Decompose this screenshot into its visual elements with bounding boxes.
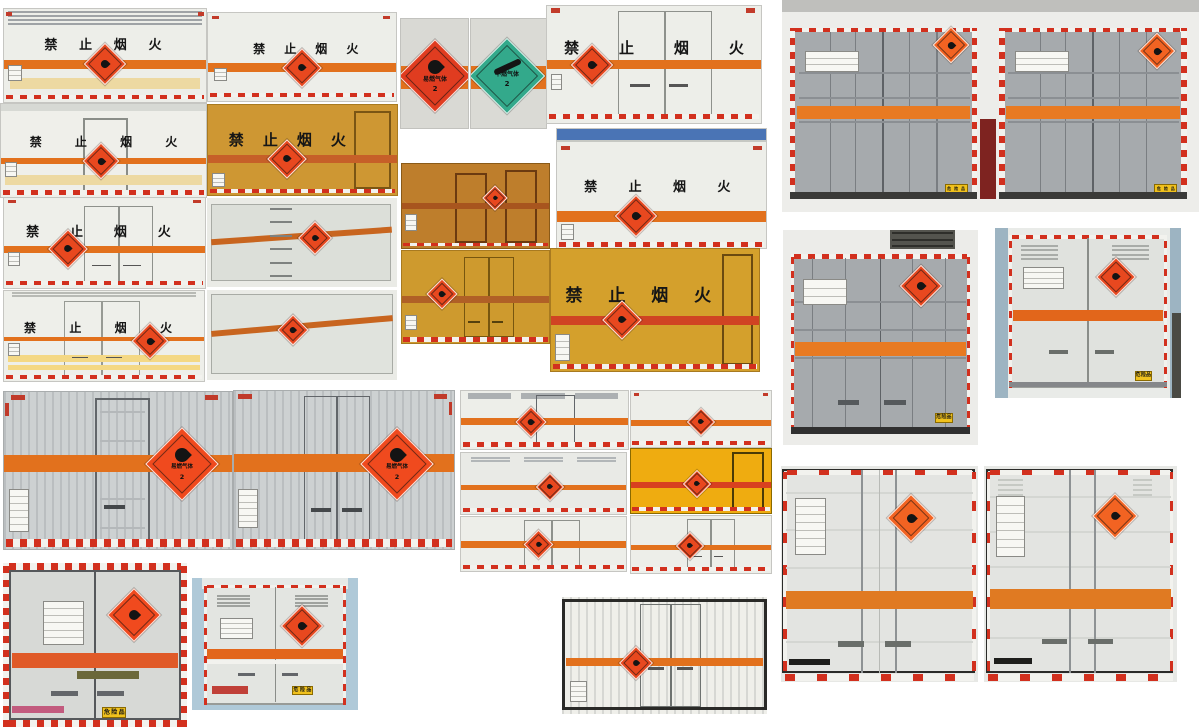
placard-class-number: 2 <box>180 474 185 481</box>
flame-icon <box>617 315 627 325</box>
placard-content <box>1145 39 1169 63</box>
flame-icon <box>438 290 446 298</box>
placard-label: 易燃气体 <box>422 76 446 82</box>
door-handle <box>1088 639 1113 645</box>
reflective-edge <box>967 254 970 432</box>
orange-stripe <box>4 337 204 342</box>
placard-content <box>1100 501 1130 531</box>
red-marker <box>6 12 12 17</box>
bottom-text-strip <box>994 658 1033 664</box>
vent-slats <box>1133 479 1152 496</box>
flame-icon <box>1109 510 1121 522</box>
lock-rod <box>1069 470 1071 673</box>
door-handle <box>693 556 703 557</box>
roof-edge <box>12 292 196 297</box>
photo-container-side-door-gas: 易燃气体2 <box>3 391 233 550</box>
info-plate <box>405 214 417 231</box>
red-marker <box>634 393 640 396</box>
reflective-strip <box>210 93 394 97</box>
flame-icon <box>905 511 918 524</box>
reflective-edge <box>1181 28 1186 200</box>
orange-stripe <box>990 589 1171 608</box>
photo-flammable-gas-placard: 易燃气体2 <box>400 18 469 129</box>
red-stripe <box>551 316 759 325</box>
placard-content <box>432 284 452 304</box>
vent-slats <box>524 457 564 462</box>
placard-content <box>55 236 81 262</box>
photo-yellow-box-no-fire: 禁止烟火 <box>207 104 398 196</box>
photo-panel-rear-doors-small-1 <box>460 516 627 572</box>
roof-edge <box>557 140 766 142</box>
info-plate <box>214 68 227 81</box>
red-stripe <box>402 203 549 210</box>
door-handle <box>630 84 649 86</box>
info-plate <box>1015 51 1069 72</box>
door-handle <box>884 400 905 405</box>
flammable-gas-placard-icon: 易燃气体2 <box>400 39 469 113</box>
reflective-strip <box>553 364 757 369</box>
placard-content <box>895 502 927 534</box>
red-label <box>212 686 249 694</box>
door-handle <box>311 508 331 512</box>
danger-goods-plate: 危险品 <box>292 686 314 695</box>
flame-icon <box>425 56 445 76</box>
flame-icon <box>1153 46 1163 56</box>
orange-stripe <box>795 342 967 356</box>
placard-content <box>939 33 963 57</box>
reflective-strip <box>549 114 759 119</box>
stripe-plate <box>77 671 140 678</box>
flame-icon <box>126 608 140 622</box>
no-fire-text: 禁止烟火 <box>584 179 730 197</box>
door-right <box>671 604 702 707</box>
placard-content <box>681 537 699 555</box>
door-split <box>879 470 880 673</box>
red-marker <box>753 146 761 151</box>
door-handle <box>1042 639 1067 645</box>
door-handle <box>677 667 693 670</box>
door-handle <box>104 505 125 509</box>
door-handle <box>1095 350 1114 354</box>
sky-band <box>557 129 766 140</box>
red-marker <box>551 8 560 13</box>
bottom-sill <box>1009 382 1167 387</box>
photo-panel-vents-small <box>460 452 627 515</box>
info-plate <box>212 173 225 187</box>
background-dark <box>1172 313 1181 398</box>
photo-truck-rear-large-right <box>984 466 1177 682</box>
door-split <box>94 570 95 721</box>
door-handle <box>123 265 141 267</box>
roof-edge <box>1 104 206 111</box>
reflective-edge <box>9 720 180 727</box>
photo-white-truck-rear-vents: 危险品 <box>995 228 1181 398</box>
orange-stripe <box>1006 106 1179 119</box>
no-fire-text: 禁止烟火 <box>26 225 171 240</box>
flame-icon <box>145 336 155 346</box>
flame-icon <box>99 58 110 69</box>
reflective-edge <box>972 28 977 200</box>
flame-icon <box>631 210 642 221</box>
door-handle <box>838 400 859 405</box>
info-plate <box>405 315 417 330</box>
placard-content: 易燃气体2 <box>410 51 460 101</box>
red-marker <box>198 12 204 17</box>
reflective-edge <box>791 254 794 432</box>
info-plate <box>803 279 848 305</box>
yellow-band <box>8 365 200 370</box>
reflective-strip <box>463 442 627 447</box>
vent-slats <box>577 457 617 462</box>
info-plate <box>551 74 562 90</box>
door-right <box>119 206 153 283</box>
placard-content: 易燃气体2 <box>157 439 207 489</box>
reflective-strip <box>210 189 395 193</box>
red-marker <box>205 395 219 400</box>
flammable-placard-icon <box>426 279 457 310</box>
reflective-strip <box>463 508 625 512</box>
info-plate <box>555 334 570 361</box>
reflective-edge <box>204 585 207 705</box>
reflective-strip <box>403 243 547 246</box>
door-handle <box>51 691 79 696</box>
background-sky <box>995 228 1008 398</box>
flame-icon <box>296 620 307 631</box>
flame-icon <box>387 445 407 465</box>
red-marker <box>238 394 251 399</box>
placard-content <box>529 535 548 554</box>
flame-icon <box>535 541 543 549</box>
red-marker <box>8 200 16 204</box>
red-marker <box>383 16 391 20</box>
photo-panel-plain-small <box>630 390 772 448</box>
no-fire-text: 禁止烟火 <box>566 283 712 310</box>
red-marker <box>11 395 25 400</box>
red-marker <box>434 394 447 399</box>
reflective-edge <box>790 28 795 200</box>
yellow-band <box>8 355 200 362</box>
photo-panel-rear-doors-small-2 <box>630 515 772 574</box>
info-plate <box>996 496 1025 556</box>
rear-door <box>722 254 753 365</box>
placard-content: 易燃气体2 <box>372 439 422 489</box>
door-handle <box>1049 350 1068 354</box>
bottom-sill <box>791 427 970 434</box>
placard-content <box>578 51 606 79</box>
placard-content <box>907 272 935 300</box>
info-plate <box>1023 267 1064 289</box>
photo-truck-rear-large-left <box>781 466 978 682</box>
orange-stripe <box>1013 310 1164 322</box>
red-marker <box>561 146 569 151</box>
placard-content <box>692 413 710 431</box>
flame-icon <box>491 194 497 200</box>
info-plate <box>8 252 20 266</box>
red-marker <box>5 403 8 416</box>
orange-stripe <box>797 106 970 119</box>
door-handle <box>648 667 664 670</box>
orange-stripe <box>4 246 205 253</box>
flammable-placard-icon <box>687 408 715 436</box>
reflective-edge <box>343 585 346 705</box>
door-handle <box>838 641 864 647</box>
placard-content <box>1103 264 1129 290</box>
flammable-gas-placard-icon: 易燃气体2 <box>360 427 434 501</box>
door-handle <box>468 321 480 323</box>
vent-slats <box>1021 245 1058 260</box>
danger-goods-plate: 危险品 <box>1135 371 1153 381</box>
reflective-strip <box>3 190 204 194</box>
reflective-strip <box>6 375 202 379</box>
photo-panel-no-fire-sky: 禁止烟火 <box>556 128 767 249</box>
ladder <box>270 208 293 277</box>
placard-class-number: 2 <box>432 85 437 92</box>
reflective-edge <box>1164 235 1167 388</box>
photo-truck-side-no-fire: 禁止烟火 <box>207 12 397 102</box>
placard-content <box>138 329 162 353</box>
info-plate <box>9 489 30 531</box>
sky-band <box>782 0 1199 12</box>
photo-non-flammable-gas-placard: 不燃气体2 <box>470 18 547 129</box>
flame-icon <box>297 62 307 72</box>
orange-stripe <box>12 653 178 668</box>
info-plate <box>5 162 17 177</box>
placard-label: 易燃气体 <box>171 465 193 471</box>
photo-two-container-truck-rears: 危险品危险品 <box>782 0 1199 212</box>
background-truck <box>980 119 996 200</box>
door-handle <box>72 357 88 359</box>
door-handle <box>342 508 362 512</box>
flammable-placard-icon <box>536 472 564 500</box>
pink-label <box>12 706 64 713</box>
placard-content <box>622 202 650 230</box>
flame-icon <box>693 481 700 488</box>
photo-collage: 禁止烟火禁止烟火禁止烟火禁止烟火禁止烟火禁止烟火易燃气体2不燃气体2禁止烟火禁止… <box>0 0 1199 727</box>
placard-content <box>688 475 706 493</box>
door-handle <box>97 691 125 696</box>
background-roof-slats <box>892 232 952 247</box>
flame-icon <box>172 445 192 465</box>
bottom-sill <box>999 192 1187 199</box>
info-plate <box>43 601 83 645</box>
danger-goods-plate: 危险品 <box>102 707 126 718</box>
flame-icon <box>97 156 107 166</box>
photo-orange-box-two-doors <box>401 163 550 249</box>
flame-icon <box>631 658 640 667</box>
placard-class-number: 2 <box>505 81 510 88</box>
reflective-strip <box>632 441 769 445</box>
rear-door <box>732 452 764 509</box>
reflective-strip <box>403 337 547 341</box>
reflective-strip <box>559 242 764 247</box>
placard-content <box>288 612 316 640</box>
photo-truck-side-center-door-no-fire: 禁止烟火 <box>0 103 207 198</box>
reflective-edge <box>1009 235 1012 388</box>
flammable-placard-icon <box>683 470 711 498</box>
roll-shutter <box>8 11 202 25</box>
info-plate <box>220 618 253 639</box>
flame-icon <box>527 418 535 426</box>
photo-truck-rear-closeup-right: 危险品 <box>192 578 358 710</box>
reflective-strip <box>6 95 204 100</box>
info-plate <box>8 65 22 81</box>
vent-slats <box>468 393 511 398</box>
flame-icon <box>311 234 320 243</box>
door-handle <box>92 265 110 267</box>
red-marker <box>746 8 755 13</box>
flame-icon <box>289 326 297 334</box>
flame-icon <box>946 40 956 50</box>
orange-stripe <box>207 649 343 659</box>
door-left <box>84 206 118 283</box>
placard-content <box>625 652 647 674</box>
placard-content <box>304 227 326 249</box>
non-flammable-gas-placard-icon: 不燃气体2 <box>470 37 545 113</box>
door-handle <box>106 357 122 359</box>
door-handle <box>492 321 504 323</box>
flame-icon <box>547 483 554 490</box>
info-plate <box>570 681 586 702</box>
vent-slats <box>471 457 511 462</box>
reflective-strip <box>463 565 625 569</box>
placard-content: 不燃气体2 <box>481 50 533 102</box>
reflective-edge <box>181 563 187 727</box>
photo-truck-rear-doors-no-fire: 禁止烟火 <box>3 197 206 289</box>
placard-content <box>521 412 541 432</box>
door-handle <box>714 556 724 557</box>
flame-icon <box>586 59 597 70</box>
rear-door <box>354 111 392 188</box>
photo-truck-rear-doors-yellow-stripes: 禁止烟火 <box>3 290 205 382</box>
photo-orange-box-rear-doors <box>401 250 550 344</box>
placard-content <box>283 320 303 340</box>
photo-container-doors-dark-frame <box>562 597 767 714</box>
placard-content <box>274 146 300 172</box>
info-plate <box>238 489 258 529</box>
red-marker <box>212 16 220 20</box>
red-marker <box>193 200 201 204</box>
info-plate <box>561 224 574 239</box>
flammable-gas-placard-icon: 易燃气体2 <box>145 427 219 501</box>
flame-icon <box>1111 272 1121 282</box>
reflective-strip <box>632 507 769 511</box>
vent-slats <box>575 393 618 398</box>
placard-content <box>487 190 503 206</box>
door-split <box>275 587 276 702</box>
photo-yellow-box-small <box>630 448 772 514</box>
bottom-text-strip <box>789 659 830 665</box>
door-handle <box>885 641 911 647</box>
red-stripe <box>402 296 549 302</box>
door-handle <box>669 84 688 86</box>
placard-content <box>91 50 119 78</box>
orange-stripe <box>786 591 973 608</box>
photo-container-rear-doors-gas: 易燃气体2 <box>233 390 455 550</box>
reflective-strip <box>6 539 229 548</box>
door-handle <box>282 673 299 676</box>
photo-container-side-angled <box>207 290 397 380</box>
door-handle <box>238 673 255 676</box>
placard-content <box>89 149 113 173</box>
orange-stripe <box>557 211 766 222</box>
red-marker <box>763 393 769 396</box>
vent-slats <box>998 479 1023 496</box>
info-plate <box>8 343 20 356</box>
photo-yellow-panel-no-fire: 禁止烟火 <box>550 248 760 372</box>
flame-icon <box>916 280 927 291</box>
red-marker <box>449 402 452 415</box>
placard-content <box>541 478 559 496</box>
flammable-placard-icon <box>615 195 657 237</box>
photo-truck-rear-closeup-left: 危险品 <box>3 563 187 727</box>
placard-label: 易燃气体 <box>386 465 408 471</box>
info-plate <box>795 498 827 554</box>
placard-content <box>116 597 152 633</box>
reflective-strip <box>632 567 769 572</box>
info-plate <box>805 51 859 72</box>
flame-icon <box>282 154 292 164</box>
photo-container-side-ladder <box>207 198 397 287</box>
reflective-strip <box>785 674 974 680</box>
white-band <box>207 660 343 664</box>
photo-box-van-no-fire: 禁止烟火 <box>546 5 762 124</box>
vent-slats <box>217 595 250 607</box>
danger-goods-plate: 危险品 <box>935 413 953 423</box>
flame-icon <box>697 419 704 426</box>
placard-content <box>609 307 635 333</box>
flame-icon <box>686 543 693 550</box>
photo-truck-side-shutter-no-fire: 禁止烟火 <box>3 8 207 103</box>
photo-panel-door-small <box>460 390 629 450</box>
flame-icon <box>63 244 73 254</box>
reflective-strip <box>236 539 452 548</box>
placard-content <box>289 55 315 81</box>
photo-container-truck-rear: 危险品 <box>783 230 978 445</box>
reflective-strip <box>988 674 1173 680</box>
placard-class-number: 2 <box>395 473 400 480</box>
reflective-edge <box>990 470 1169 475</box>
bottom-sill <box>790 192 978 199</box>
reflective-strip <box>6 281 203 286</box>
reflective-edge <box>999 28 1004 200</box>
orange-stripe <box>566 658 763 666</box>
